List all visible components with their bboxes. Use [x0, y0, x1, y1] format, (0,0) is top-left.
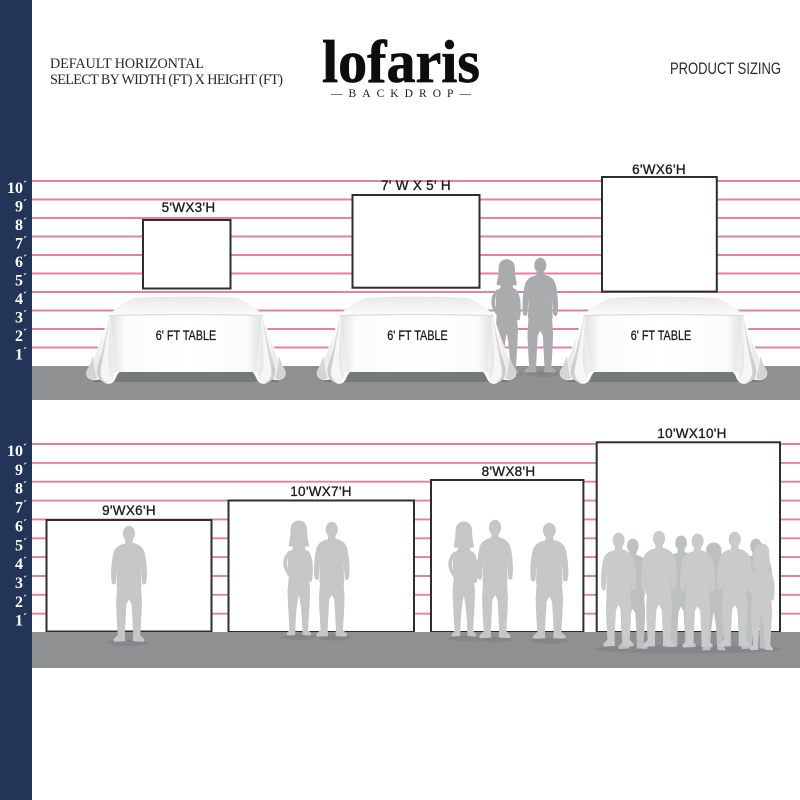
- svg-text:—BACKDROP—: —BACKDROP—: [330, 88, 477, 100]
- svg-text:PRODUCT SIZING: PRODUCT SIZING: [670, 60, 781, 78]
- svg-text:6'WX6'H: 6'WX6'H: [632, 162, 686, 177]
- svg-text:9'WX6'H: 9'WX6'H: [102, 503, 156, 518]
- svg-text:6' FT TABLE: 6' FT TABLE: [387, 327, 448, 343]
- svg-text:6' FT TABLE: 6' FT TABLE: [156, 327, 217, 343]
- svg-text:DEFAULT HORIZONTAL: DEFAULT HORIZONTAL: [50, 56, 204, 72]
- svg-text:8'WX8'H: 8'WX8'H: [482, 464, 536, 479]
- svg-text:SELECT BY WIDTH (FT) X HEIGHT: SELECT BY WIDTH (FT) X HEIGHT (FT): [50, 72, 283, 88]
- svg-text:5'WX3'H: 5'WX3'H: [162, 200, 216, 215]
- svg-text:6' FT TABLE: 6' FT TABLE: [631, 327, 692, 343]
- svg-text:10'WX7'H: 10'WX7'H: [290, 484, 352, 499]
- svg-text:10'WX10'H: 10'WX10'H: [657, 426, 726, 441]
- svg-text:lofaris: lofaris: [322, 29, 480, 95]
- svg-text:7' W X 5' H: 7' W X 5' H: [381, 178, 451, 193]
